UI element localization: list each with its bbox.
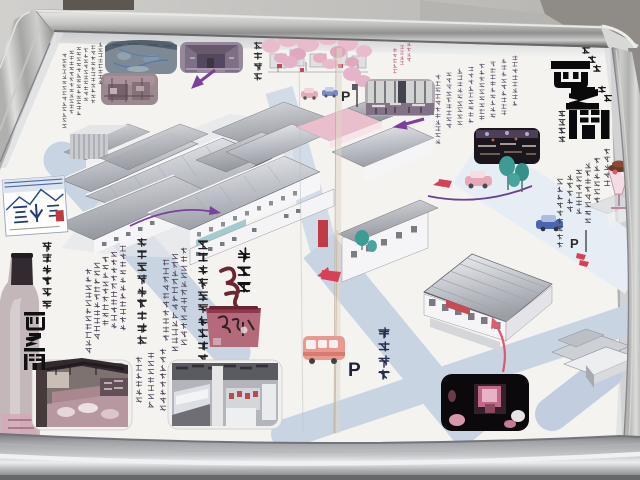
svg-text:P: P [348, 360, 361, 381]
svg-text:P: P [341, 88, 350, 104]
svg-text:P: P [570, 236, 579, 251]
